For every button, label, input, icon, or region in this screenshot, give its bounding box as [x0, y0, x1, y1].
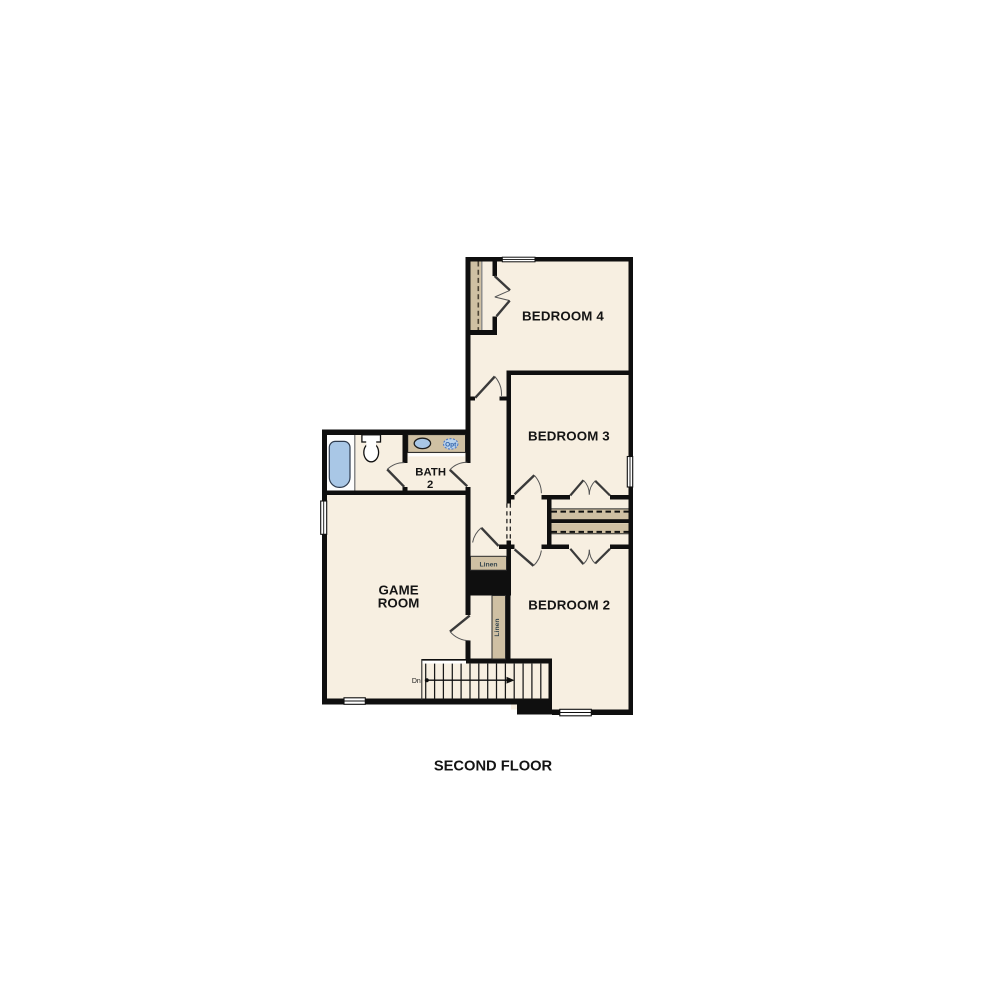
svg-text:BATH: BATH	[415, 466, 446, 478]
svg-text:Linen: Linen	[494, 618, 501, 636]
svg-text:Linen: Linen	[479, 561, 497, 568]
svg-text:BEDROOM 2: BEDROOM 2	[528, 598, 610, 613]
svg-text:Dn: Dn	[412, 678, 421, 685]
svg-text:Opt: Opt	[445, 441, 457, 448]
svg-text:BEDROOM 4: BEDROOM 4	[522, 309, 604, 324]
svg-text:2: 2	[427, 479, 433, 491]
svg-text:SECOND FLOOR: SECOND FLOOR	[434, 759, 553, 775]
svg-text:ROOM: ROOM	[378, 596, 420, 611]
svg-text:BEDROOM 3: BEDROOM 3	[528, 429, 610, 444]
